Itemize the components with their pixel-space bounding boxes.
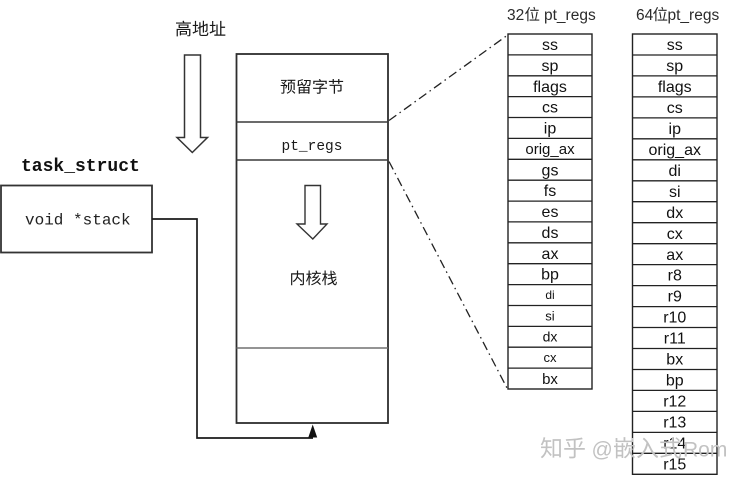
svg-text:flags: flags bbox=[658, 79, 692, 96]
svg-text:dx: dx bbox=[543, 329, 558, 345]
svg-text:r10: r10 bbox=[663, 310, 686, 327]
svg-text:bp: bp bbox=[541, 267, 559, 284]
svg-text:sp: sp bbox=[666, 58, 683, 75]
svg-text:bp: bp bbox=[666, 373, 684, 390]
svg-text:orig_ax: orig_ax bbox=[649, 142, 701, 159]
svg-text:cx: cx bbox=[544, 350, 558, 365]
svg-text:di: di bbox=[669, 163, 681, 180]
svg-text:di: di bbox=[545, 288, 554, 302]
svg-text:gs: gs bbox=[542, 162, 559, 179]
svg-text:pt_regs: pt_regs bbox=[544, 7, 596, 24]
svg-text:void *stack: void *stack bbox=[25, 212, 131, 230]
svg-text:dx: dx bbox=[666, 205, 683, 222]
svg-text:cx: cx bbox=[667, 226, 683, 243]
svg-text:si: si bbox=[669, 184, 681, 201]
svg-text:fs: fs bbox=[544, 183, 556, 200]
svg-text:ds: ds bbox=[542, 225, 559, 242]
svg-text:r8: r8 bbox=[668, 268, 682, 285]
svg-text:64: 64 bbox=[636, 7, 654, 24]
svg-text:ax: ax bbox=[542, 246, 559, 263]
svg-text:task_struct: task_struct bbox=[21, 157, 140, 177]
svg-text:@: @ bbox=[592, 439, 613, 462]
svg-text:r13: r13 bbox=[663, 415, 686, 432]
svg-text:cs: cs bbox=[542, 100, 558, 117]
svg-text:sp: sp bbox=[542, 58, 559, 75]
svg-text:bx: bx bbox=[666, 352, 683, 369]
svg-text:Rom: Rom bbox=[683, 439, 727, 462]
svg-text:ip: ip bbox=[544, 121, 557, 138]
svg-text:bx: bx bbox=[542, 371, 558, 388]
svg-text:pt_regs: pt_regs bbox=[668, 7, 720, 24]
svg-text:ip: ip bbox=[669, 121, 682, 138]
svg-text:cs: cs bbox=[667, 100, 683, 117]
svg-text:r12: r12 bbox=[663, 394, 686, 411]
svg-text:32: 32 bbox=[507, 7, 524, 24]
svg-text:flags: flags bbox=[533, 79, 567, 96]
svg-text:r9: r9 bbox=[668, 289, 682, 306]
svg-text:ss: ss bbox=[542, 37, 558, 54]
svg-text:r11: r11 bbox=[664, 331, 686, 348]
svg-text:orig_ax: orig_ax bbox=[525, 141, 575, 158]
svg-text:pt_regs: pt_regs bbox=[282, 139, 343, 155]
svg-text:es: es bbox=[542, 204, 559, 221]
svg-text:ss: ss bbox=[667, 37, 683, 54]
svg-text:ax: ax bbox=[666, 247, 683, 264]
svg-text:si: si bbox=[545, 309, 555, 324]
